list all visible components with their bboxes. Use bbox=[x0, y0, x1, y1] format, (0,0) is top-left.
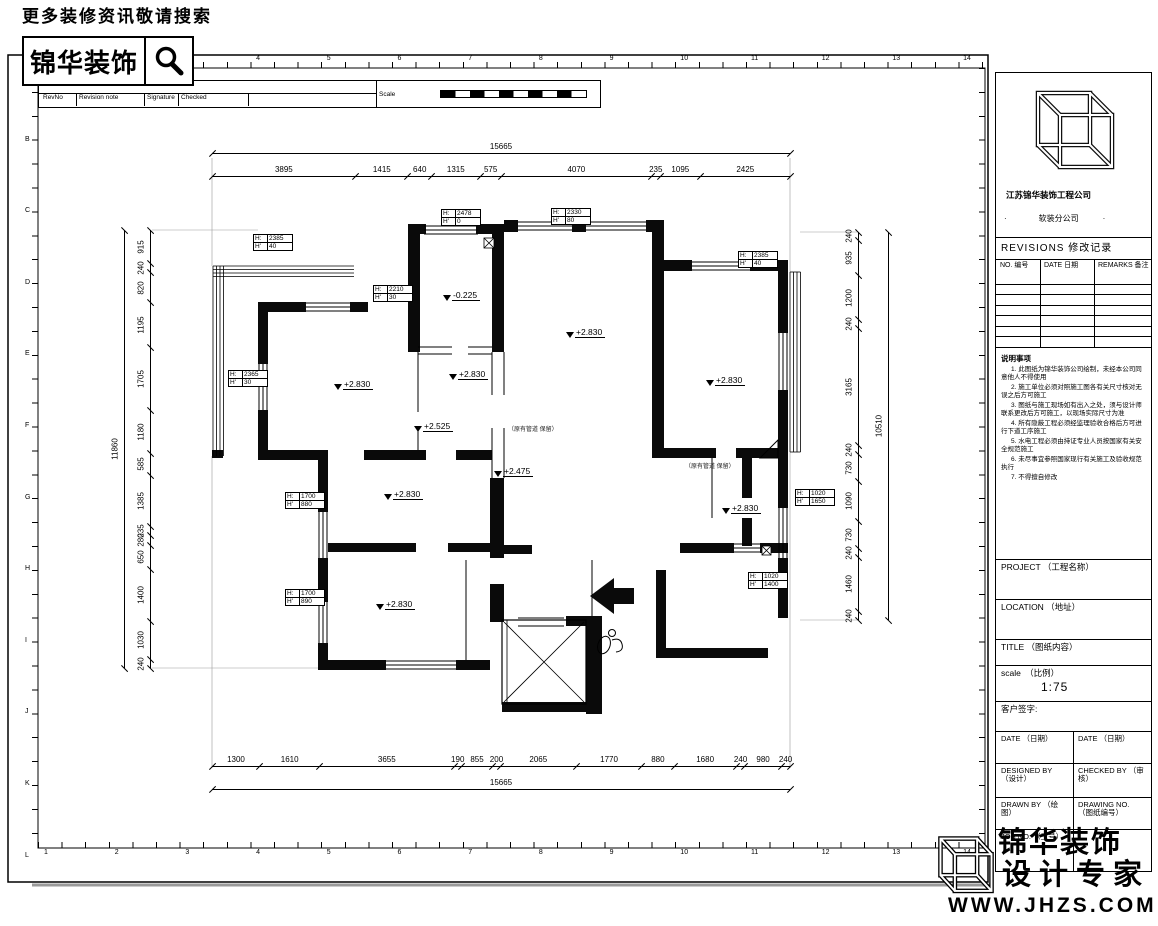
company-branch: · 软装分公司 · bbox=[1004, 215, 1144, 224]
revtable-header-cell: NO. 编号 bbox=[1000, 262, 1028, 270]
date-label-left: DATE （日期） bbox=[1001, 735, 1053, 743]
dim-top-value: 235 bbox=[649, 165, 662, 174]
window-tag-row: H'80 bbox=[552, 216, 590, 224]
date-label-right: DATE （日期） bbox=[1078, 735, 1130, 743]
level-value: -0.225 bbox=[452, 290, 480, 301]
revtable-row-divider bbox=[996, 305, 1151, 306]
window-tag-cell: 30 bbox=[388, 294, 412, 301]
dim-bottom-value: 200 bbox=[490, 755, 503, 764]
window-tag: H:1700H'890 bbox=[285, 589, 325, 606]
level-marker: +2.475 bbox=[494, 466, 533, 477]
grid-number-bottom: 7 bbox=[468, 849, 472, 857]
panel-divider bbox=[996, 639, 1151, 640]
revtable-col-divider bbox=[1040, 259, 1041, 347]
grid-number-bottom: 6 bbox=[398, 849, 402, 857]
scale-value: 1:75 bbox=[1041, 681, 1068, 694]
level-marker: +2.830 bbox=[376, 599, 415, 610]
grid-number-top: 4 bbox=[256, 55, 260, 63]
interior-partitions bbox=[418, 347, 712, 660]
window-tag-cell: H' bbox=[254, 243, 268, 250]
window-tag-cell: H: bbox=[229, 371, 243, 378]
grid-letter: L bbox=[25, 852, 29, 860]
window-tag-cell: H: bbox=[796, 490, 810, 497]
notes-block: 说明事项 1. 此图纸为锦华装饰公司绘制，未经本公司同意他人不得使用2. 施工单… bbox=[1001, 355, 1145, 483]
grid-number-top: 11 bbox=[751, 55, 758, 63]
dim-top-value: 1415 bbox=[373, 165, 391, 174]
dim-left-value: 1385 bbox=[137, 492, 146, 510]
dim-left-total-line bbox=[124, 230, 125, 668]
windows bbox=[259, 222, 787, 669]
level-value: +2.830 bbox=[385, 599, 415, 610]
dim-left-total-value: 11860 bbox=[111, 438, 120, 460]
dim-left-value: 915 bbox=[137, 240, 146, 253]
note-item: 5. 水电工程必须由持证专业人员按国家有关安全规范施工 bbox=[1001, 438, 1145, 455]
dim-left-value: 1030 bbox=[137, 631, 146, 649]
dim-top-total-value: 15665 bbox=[490, 142, 512, 151]
dim-bottom-value: 3655 bbox=[378, 755, 396, 764]
level-value: +2.830 bbox=[393, 489, 423, 500]
window-tag-row: H'30 bbox=[229, 378, 267, 386]
level-triangle-icon bbox=[384, 494, 392, 500]
window-tag-cell: H' bbox=[796, 498, 810, 505]
grid-number-bottom: 12 bbox=[822, 849, 830, 857]
note-item: 1. 此图纸为锦华装饰公司绘制，未经本公司同意他人不得使用 bbox=[1001, 366, 1145, 383]
grid-letter: I bbox=[25, 637, 27, 645]
dim-right-value: 240 bbox=[845, 609, 854, 622]
revtable-row-divider bbox=[996, 336, 1151, 337]
dim-bottom-value: 240 bbox=[779, 755, 792, 764]
window-tag-cell: 2385 bbox=[268, 235, 292, 242]
level-value: +2.830 bbox=[731, 503, 761, 514]
grid-number-top: 12 bbox=[822, 55, 830, 63]
dim-bottom-value: 1680 bbox=[696, 755, 714, 764]
revtable-header-cell: REMARKS 备注 bbox=[1098, 262, 1149, 270]
window-tag-cell: 40 bbox=[753, 260, 777, 267]
level-triangle-icon bbox=[449, 374, 457, 380]
dim-bottom-value: 855 bbox=[470, 755, 483, 764]
window-tag-row: H:2210 bbox=[374, 286, 412, 293]
grid-number-bottom: 1 bbox=[44, 849, 48, 857]
dim-left-value: 1180 bbox=[137, 423, 146, 440]
watermark-line1: 锦华装饰 bbox=[998, 828, 1122, 860]
window-tag-row: H'0 bbox=[442, 217, 480, 225]
window-tag-cell: H' bbox=[552, 217, 566, 224]
dim-top-value: 1095 bbox=[671, 165, 689, 174]
grid-number-top: 9 bbox=[610, 55, 614, 63]
window-tag-cell: H' bbox=[374, 294, 388, 301]
dim-left-value: 585 bbox=[137, 458, 146, 471]
plan-annotation: （原有管道 保留） bbox=[685, 461, 735, 470]
window-tag: H:2210H'30 bbox=[373, 285, 413, 302]
ruler-left bbox=[32, 68, 38, 848]
grid-number-bottom: 5 bbox=[327, 849, 331, 857]
window-tag-cell: 890 bbox=[300, 598, 324, 605]
level-triangle-icon bbox=[334, 384, 342, 390]
dim-left-value: 1705 bbox=[137, 370, 146, 388]
dim-left-value: 280 bbox=[137, 534, 146, 547]
location-label: LOCATION （地址） bbox=[1001, 603, 1080, 612]
window-tag-row: H:2385 bbox=[254, 235, 292, 242]
dim-top-value: 4070 bbox=[567, 165, 585, 174]
window-tag-cell: H: bbox=[749, 573, 763, 580]
grid-letter: F bbox=[25, 422, 29, 430]
window-tag-row: H'40 bbox=[254, 242, 292, 250]
window-tag-cell: 2210 bbox=[388, 286, 412, 293]
dim-right-value: 240 bbox=[845, 443, 854, 456]
panel-divider bbox=[996, 599, 1151, 600]
grid-number-top: 13 bbox=[892, 55, 900, 63]
level-marker: +2.830 bbox=[449, 369, 488, 380]
window-tag-cell: H: bbox=[552, 209, 566, 216]
window-tag: H:1020H'1650 bbox=[795, 489, 835, 506]
company-name: 江苏锦华装饰工程公司 bbox=[1006, 191, 1091, 200]
scale-strip-label: Scale bbox=[379, 91, 395, 98]
grid-number-bottom: 2 bbox=[115, 849, 119, 857]
grid-letter: G bbox=[25, 494, 30, 502]
dim-left-value: 240 bbox=[137, 657, 146, 670]
grid-letter: C bbox=[25, 207, 30, 215]
dim-left-value: 240 bbox=[137, 262, 146, 275]
revisions-table: NO. 编号DATE 日期REMARKS 备注 bbox=[996, 259, 1151, 347]
level-marker: +2.830 bbox=[384, 489, 423, 500]
dim-bottom-value: 190 bbox=[451, 755, 464, 764]
window-tag-cell: 2365 bbox=[243, 371, 267, 378]
window-tag: H:2365H'30 bbox=[228, 370, 268, 387]
dim-top-value: 2425 bbox=[736, 165, 754, 174]
level-marker: +2.830 bbox=[334, 379, 373, 390]
grid-number-top: 14 bbox=[963, 55, 971, 63]
dim-left-value: 820 bbox=[137, 281, 146, 294]
window-tag-cell: H' bbox=[286, 598, 300, 605]
level-value: +2.830 bbox=[343, 379, 373, 390]
grid-letter: D bbox=[25, 279, 30, 287]
window-tag: H:1020H'1400 bbox=[748, 572, 788, 589]
balcony-railings bbox=[213, 266, 801, 456]
dim-bottom-value: 1300 bbox=[227, 755, 245, 764]
level-triangle-icon bbox=[494, 471, 502, 477]
header-tagline: 更多装修资讯敬请搜索 bbox=[22, 8, 212, 27]
grid-number-bottom: 9 bbox=[610, 849, 614, 857]
window-tag-cell: H: bbox=[286, 493, 300, 500]
window-tag-cell: H' bbox=[739, 260, 753, 267]
level-triangle-icon bbox=[376, 604, 384, 610]
window-tag-row: H:1020 bbox=[749, 573, 787, 580]
window-tag-cell: H: bbox=[286, 590, 300, 597]
grid-number-bottom: 4 bbox=[256, 849, 260, 857]
revtable-col-divider bbox=[1094, 259, 1095, 347]
window-tag-cell: H: bbox=[374, 286, 388, 293]
window-tag-row: H:2385 bbox=[739, 252, 777, 259]
revtable-row-divider bbox=[996, 326, 1151, 327]
dim-top-value: 3895 bbox=[275, 165, 293, 174]
window-tag-cell: H' bbox=[229, 379, 243, 386]
dim-bottom-value: 880 bbox=[651, 755, 664, 764]
dim-right-value: 240 bbox=[845, 546, 854, 559]
level-value: +2.830 bbox=[715, 375, 745, 386]
scale-strip: Scale bbox=[375, 80, 601, 108]
level-marker: +2.830 bbox=[722, 503, 761, 514]
window-tag: H:2330H'80 bbox=[551, 208, 591, 225]
title-block-panel: 江苏锦华装饰工程公司 · 软装分公司 · REVISIONS 修改记录 NO. … bbox=[995, 72, 1152, 872]
window-tag-cell: 80 bbox=[566, 217, 590, 224]
drawing-no-label: DRAWING NO. （图纸编号） bbox=[1078, 801, 1144, 818]
level-marker: +2.830 bbox=[706, 375, 745, 386]
note-item: 6. 未尽事宜参照国家现行有关施工及验收规范执行 bbox=[1001, 456, 1145, 473]
dim-right-value: 1200 bbox=[845, 289, 854, 307]
revtable-header-cell: DATE 日期 bbox=[1044, 262, 1078, 270]
level-triangle-icon bbox=[722, 508, 730, 514]
grid-letter: B bbox=[25, 136, 30, 144]
level-marker: -0.225 bbox=[443, 290, 480, 301]
checked-by-label: CHECKED BY （审核） bbox=[1078, 767, 1144, 784]
window-tag-cell: 40 bbox=[268, 243, 292, 250]
watermark-line2: 设计专家 bbox=[1002, 860, 1150, 892]
dim-top-value: 640 bbox=[413, 165, 426, 174]
brand-logo-text: 锦华装饰 bbox=[24, 38, 144, 84]
window-tag-cell: 1700 bbox=[300, 590, 324, 597]
grid-number-bottom: 13 bbox=[892, 849, 900, 857]
revtable-row-divider bbox=[996, 315, 1151, 316]
window-tag-row: H:1700 bbox=[286, 590, 324, 597]
window-tag-row: H'1650 bbox=[796, 497, 834, 505]
entry-arrow-icon bbox=[590, 578, 634, 614]
panel-divider bbox=[996, 665, 1151, 666]
dim-right-total-line bbox=[888, 232, 889, 620]
dim-right-value: 240 bbox=[845, 230, 854, 243]
window-tag-cell: 1400 bbox=[763, 581, 787, 588]
window-tag: H:2385H'40 bbox=[738, 251, 778, 268]
level-triangle-icon bbox=[443, 295, 451, 301]
panel-divider bbox=[996, 237, 1151, 238]
window-tag-cell: 2330 bbox=[566, 209, 590, 216]
panel-divider bbox=[996, 347, 1151, 348]
grid-letter: E bbox=[25, 350, 30, 358]
company-cube-logo bbox=[1020, 81, 1130, 181]
elevator-shaft bbox=[502, 618, 586, 704]
note-item: 4. 所有隐蔽工程必须经监理验收合格后方可进行下道工序施工 bbox=[1001, 420, 1145, 437]
dim-bottom-value: 2065 bbox=[529, 755, 547, 764]
dim-bottom-value: 1770 bbox=[600, 755, 618, 764]
window-tag-cell: 1650 bbox=[810, 498, 834, 505]
window-tag-cell: 0 bbox=[456, 218, 480, 225]
grid-letter: K bbox=[25, 780, 30, 788]
grid-letter: J bbox=[25, 708, 29, 716]
window-tag-row: H'40 bbox=[739, 259, 777, 267]
window-tag-cell: H: bbox=[254, 235, 268, 242]
dim-left-line bbox=[150, 230, 151, 668]
dim-bottom-value: 980 bbox=[756, 755, 769, 764]
window-tag-cell: 2385 bbox=[753, 252, 777, 259]
dim-right-value: 240 bbox=[845, 317, 854, 330]
window-tag-cell: 880 bbox=[300, 501, 324, 508]
window-tag-cell: H' bbox=[286, 501, 300, 508]
ruler-right bbox=[979, 68, 985, 848]
grid-number-top: 7 bbox=[468, 55, 472, 63]
notes-title: 说明事项 bbox=[1001, 355, 1145, 364]
window-tag-cell: 1020 bbox=[763, 573, 787, 580]
window-tag-cell: 2478 bbox=[456, 210, 480, 217]
designed-by-label: DESIGNED BY （设计） bbox=[1001, 767, 1069, 784]
dim-right-value: 730 bbox=[845, 461, 854, 474]
ruler-bottom bbox=[38, 842, 985, 848]
window-tag-row: H:1700 bbox=[286, 493, 324, 500]
revtable-row-divider bbox=[996, 284, 1151, 285]
plan-annotation: （原有管道 保留） bbox=[508, 424, 558, 433]
window-tag-row: H'30 bbox=[374, 293, 412, 301]
project-label: PROJECT （工程名称） bbox=[1001, 563, 1094, 572]
panel-divider bbox=[996, 797, 1151, 798]
window-tag: H:1700H'880 bbox=[285, 492, 325, 509]
level-marker: +2.830 bbox=[566, 327, 605, 338]
level-value: +2.525 bbox=[423, 421, 453, 432]
grid-number-bottom: 8 bbox=[539, 849, 543, 857]
dim-left-value: 650 bbox=[137, 551, 146, 564]
scale-label: scale （比例） bbox=[1001, 669, 1059, 678]
level-value: +2.830 bbox=[575, 327, 605, 338]
window-tag-cell: H' bbox=[442, 218, 456, 225]
panel-divider bbox=[996, 559, 1151, 560]
window-tag-row: H'890 bbox=[286, 597, 324, 605]
dim-right-line bbox=[858, 232, 859, 620]
window-tag: H:2478H'0 bbox=[441, 209, 481, 226]
dim-right-value: 3165 bbox=[845, 378, 854, 396]
level-value: +2.830 bbox=[458, 369, 488, 380]
panel-divider bbox=[996, 701, 1151, 702]
dim-right-value: 730 bbox=[845, 528, 854, 541]
dim-right-value: 1460 bbox=[845, 575, 854, 593]
revisions-title: REVISIONS 修改记录 bbox=[1001, 243, 1112, 254]
grid-number-bottom: 3 bbox=[185, 849, 189, 857]
dim-left-value: 1195 bbox=[137, 316, 146, 333]
grid-number-top: 8 bbox=[539, 55, 543, 63]
graphic-scale-bar bbox=[440, 90, 587, 98]
window-tag: H:2385H'40 bbox=[253, 234, 293, 251]
window-tag-row: H'880 bbox=[286, 500, 324, 508]
level-triangle-icon bbox=[414, 426, 422, 432]
window-tag-row: H:2478 bbox=[442, 210, 480, 217]
panel-divider bbox=[996, 763, 1151, 764]
dim-left-value: 1400 bbox=[137, 586, 146, 604]
magnifier-icon bbox=[144, 38, 192, 84]
window-tag-row: H'1400 bbox=[749, 580, 787, 588]
dim-bottom-total-value: 15665 bbox=[490, 778, 512, 787]
window-tag-row: H:1020 bbox=[796, 490, 834, 497]
brand-logo: 锦华装饰 bbox=[22, 36, 194, 86]
grid-number-top: 10 bbox=[680, 55, 688, 63]
window-tag-cell: 30 bbox=[243, 379, 267, 386]
window-tag-cell: H: bbox=[739, 252, 753, 259]
dim-bottom-value: 240 bbox=[734, 755, 747, 764]
dim-bottom-value: 1610 bbox=[281, 755, 299, 764]
dim-top-value: 575 bbox=[484, 165, 497, 174]
note-item: 7. 不得擅自修改 bbox=[1001, 474, 1145, 483]
window-tag-row: H:2330 bbox=[552, 209, 590, 216]
window-tag-cell: 1020 bbox=[810, 490, 834, 497]
client-sign-label: 客户签字: bbox=[1001, 705, 1037, 714]
level-value: +2.475 bbox=[503, 466, 533, 477]
watermark-url: WWW.JHZS.COM bbox=[948, 894, 1157, 917]
page: 更多装修资讯敬请搜索 锦华装饰 RevNoRevision noteSignat… bbox=[0, 0, 1158, 926]
grid-number-bottom: 11 bbox=[751, 849, 758, 857]
note-item: 3. 图纸与施工现场如有出入之处，须与设计师联系更改后方可施工，以现场实际尺寸为… bbox=[1001, 402, 1145, 419]
dim-right-value: 1090 bbox=[845, 492, 854, 510]
level-triangle-icon bbox=[566, 332, 574, 338]
level-triangle-icon bbox=[706, 380, 714, 386]
window-tag-cell: 1700 bbox=[300, 493, 324, 500]
revstrip-cell: Checked bbox=[179, 94, 207, 101]
dim-top-value: 1315 bbox=[447, 165, 465, 174]
revtable-row-divider bbox=[996, 294, 1151, 295]
level-marker: +2.525 bbox=[414, 421, 453, 432]
dim-top-total-line bbox=[212, 153, 790, 154]
dim-bottom-total-line bbox=[212, 789, 790, 790]
revstrip-cell: RevNo bbox=[41, 94, 63, 101]
grid-number-top: 6 bbox=[398, 55, 402, 63]
window-tag-row: H:2365 bbox=[229, 371, 267, 378]
dim-right-total-value: 10510 bbox=[875, 415, 884, 437]
grid-letter: H bbox=[25, 565, 30, 573]
dim-right-value: 935 bbox=[845, 251, 854, 264]
note-item: 2. 施工单位必须对照施工图各有关尺寸核对无误之后方可施工 bbox=[1001, 384, 1145, 401]
title-label: TITLE （图纸内容） bbox=[1001, 643, 1078, 652]
drawn-by-label: DRAWN BY （绘图） bbox=[1001, 801, 1069, 818]
window-tag-cell: H' bbox=[749, 581, 763, 588]
revstrip-divider bbox=[248, 93, 249, 106]
grid-number-bottom: 10 bbox=[680, 849, 688, 857]
grid-number-top: 5 bbox=[327, 55, 331, 63]
revstrip-cell: Signature bbox=[145, 94, 175, 101]
window-tag-cell: H: bbox=[442, 210, 456, 217]
revstrip-cell: Revision note bbox=[77, 94, 118, 101]
